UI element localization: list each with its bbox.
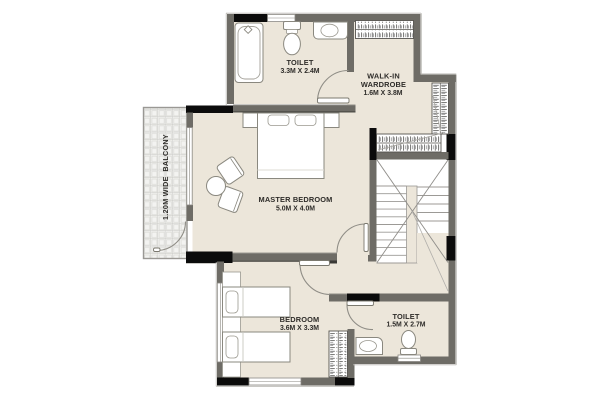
svg-text:WARDROBE: WARDROBE — [361, 80, 406, 89]
svg-text:TOILET: TOILET — [392, 312, 419, 321]
svg-text:1.6M X 3.8M: 1.6M X 3.8M — [363, 90, 402, 97]
svg-text:TOILET: TOILET — [286, 58, 313, 67]
svg-text:MASTER BEDROOM: MASTER BEDROOM — [259, 195, 333, 204]
svg-text:1.20M WIDE BALCONY: 1.20M WIDE BALCONY — [161, 134, 170, 220]
svg-text:1.5M X 2.7M: 1.5M X 2.7M — [386, 322, 425, 329]
svg-text:5.0M X 4.0M: 5.0M X 4.0M — [276, 206, 315, 213]
svg-text:3.3M X 2.4M: 3.3M X 2.4M — [280, 68, 319, 75]
svg-text:3.6M X 3.3M: 3.6M X 3.3M — [280, 325, 319, 332]
svg-text:BEDROOM: BEDROOM — [280, 315, 320, 324]
